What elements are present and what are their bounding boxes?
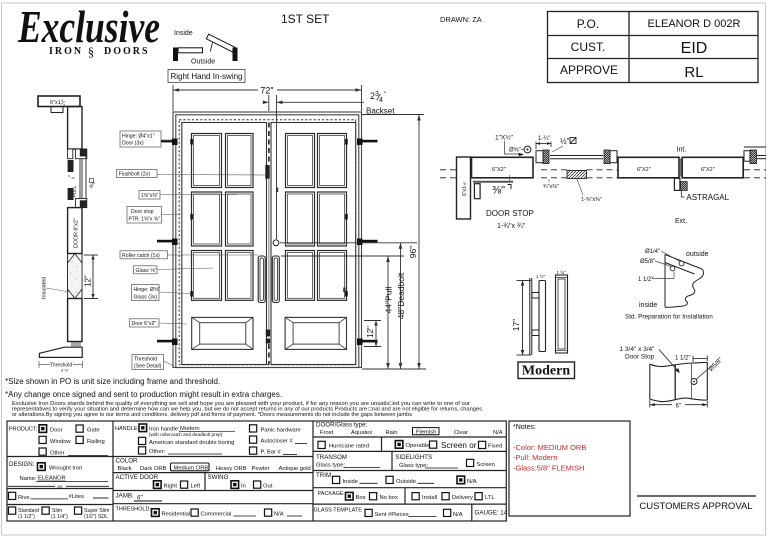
svg-text:1 ½": 1 ½" <box>536 273 546 279</box>
svg-text:DESIGN:: DESIGN: <box>9 461 35 468</box>
svg-text:Residential: Residential <box>162 511 191 517</box>
svg-text:Ø5/8": Ø5/8" <box>640 259 655 265</box>
svg-text:(1 1/4"): (1 1/4") <box>51 514 68 520</box>
svg-text:Panic hardware: Panic hardware <box>261 427 301 433</box>
svg-text:Aquatex: Aquatex <box>351 430 372 436</box>
svg-text:DOOR/Glass type:: DOOR/Glass type: <box>316 421 368 428</box>
svg-text:48"Deadbolt: 48"Deadbolt <box>396 272 406 319</box>
svg-text:Door Stop: Door Stop <box>625 354 655 361</box>
svg-text:Door stop: Door stop <box>131 209 154 215</box>
svg-text:Railing: Railing <box>87 439 105 445</box>
svg-text:Inside: Inside <box>174 30 193 37</box>
svg-text:Outside: Outside <box>396 479 416 485</box>
svg-text:-Glass:5/8" FLEMISH: -Glass:5/8" FLEMISH <box>513 464 584 473</box>
svg-text:PACKAGE: PACKAGE <box>318 491 345 497</box>
svg-text:Standard: Standard <box>18 508 39 514</box>
svg-text:Gate: Gate <box>87 428 100 434</box>
svg-text:Left: Left <box>191 484 201 490</box>
svg-text:Door: Door <box>50 428 63 434</box>
svg-text:N/A: N/A <box>274 511 284 517</box>
svg-text:SIDELIGHTS: SIDELIGHTS <box>395 454 432 461</box>
svg-text:72": 72" <box>260 86 273 96</box>
svg-text:1"X½": 1"X½" <box>495 134 514 142</box>
svg-text:Ø⅝"-: Ø⅝"- <box>509 148 523 154</box>
svg-text:DOOR STOP: DOOR STOP <box>486 209 534 218</box>
svg-text:-Pull: Modern: -Pull: Modern <box>513 453 558 462</box>
svg-text:Clear: Clear <box>454 430 468 436</box>
svg-text:DOORS: DOORS <box>104 46 150 57</box>
svg-text:ELEANOR: ELEANOR <box>38 476 66 482</box>
svg-text:DOOR 6"x2": DOOR 6"x2" <box>74 218 80 248</box>
svg-text:LTL: LTL <box>485 495 495 501</box>
svg-text:6"X2": 6"X2" <box>701 167 715 173</box>
svg-text:Other: Other <box>50 451 65 457</box>
svg-text:JAMB:: JAMB: <box>116 493 135 500</box>
svg-text:Int.: Int. <box>677 147 687 154</box>
svg-text:Hinge: Ø4"x1": Hinge: Ø4"x1" <box>122 134 155 140</box>
svg-text:Medium ORB: Medium ORB <box>174 465 209 471</box>
svg-text:(See Detail): (See Detail) <box>134 364 162 370</box>
svg-text:TRANSOM: TRANSOM <box>316 454 347 461</box>
svg-text:1 1/2": 1 1/2" <box>638 277 653 283</box>
svg-text:Glass (3x): Glass (3x) <box>134 295 158 301</box>
svg-text:Glass type:: Glass type: <box>316 462 345 468</box>
svg-text:Ext.: Ext. <box>675 218 687 225</box>
svg-text:Glass type:: Glass type: <box>399 463 428 469</box>
svg-text:(1 1/2"): (1 1/2") <box>18 514 35 520</box>
svg-text:GAUGE: 14: GAUGE: 14 <box>475 509 508 516</box>
svg-text:PRODUCT:: PRODUCT: <box>9 427 38 433</box>
svg-text:Name:: Name: <box>20 476 37 482</box>
svg-text:HANDLE:: HANDLE: <box>115 426 139 432</box>
svg-text:N/A: N/A <box>467 479 477 485</box>
svg-text:½": ½" <box>462 181 467 186</box>
svg-text:1ST SET: 1ST SET <box>281 12 330 26</box>
svg-text:Other:: Other: <box>149 449 165 455</box>
svg-text:Pewter: Pewter <box>252 466 270 472</box>
svg-text:12": 12" <box>366 326 375 338</box>
svg-text:Antique gold: Antique gold <box>279 466 311 472</box>
svg-text:Dark ORB: Dark ORB <box>140 466 167 472</box>
svg-text:COLOR: COLOR <box>116 457 139 464</box>
svg-text:12": 12" <box>84 275 93 287</box>
svg-text:(with rollercatch and deadbolt: (with rollercatch and deadbolt prep) <box>149 432 223 437</box>
svg-text:Flushbolt (2x): Flushbolt (2x) <box>119 172 151 178</box>
svg-text:THRESHOLD:: THRESHOLD: <box>116 506 152 512</box>
svg-text:Black: Black <box>118 466 132 472</box>
svg-text:Insulated: Insulated <box>42 277 48 299</box>
svg-text:SWING: SWING <box>208 474 229 481</box>
svg-text:96": 96" <box>408 246 418 258</box>
svg-text:American standard double borin: American standard double boring <box>149 440 234 446</box>
svg-text:Rive: Rive <box>18 495 30 501</box>
svg-text:⅜": ⅜" <box>492 185 505 197</box>
svg-text:P.O.: P.O. <box>577 17 599 31</box>
svg-text:Rain: Rain <box>386 430 398 436</box>
svg-text:RL: RL <box>684 64 703 81</box>
svg-text:6 ¾": 6 ¾" <box>61 369 69 373</box>
svg-text:44"Pull: 44"Pull <box>384 287 394 314</box>
svg-text:Super Slim: Super Slim <box>84 508 109 514</box>
svg-text:PULL: PULL <box>72 185 77 197</box>
svg-text:-Color: MEDIUM ORB: -Color: MEDIUM ORB <box>513 443 586 452</box>
svg-text:6"x1: 6"x1 <box>50 100 61 106</box>
svg-text:6"X2": 6"X2" <box>637 167 651 173</box>
svg-text:Right Hand In-swing: Right Hand In-swing <box>170 72 242 81</box>
svg-text:17": 17" <box>511 319 521 331</box>
svg-text:No box: No box <box>380 495 398 501</box>
svg-text:CUST.: CUST. <box>571 40 606 54</box>
svg-text:Roller catch (1x): Roller catch (1x) <box>122 253 160 259</box>
svg-text:Slim: Slim <box>52 508 62 514</box>
svg-text:Commercial: Commercial <box>201 511 232 517</box>
svg-text:¾"x⅜": ¾"x⅜" <box>543 184 559 190</box>
svg-text:Hurricane rated: Hurricane rated <box>329 444 369 450</box>
svg-text:Screen or: Screen or <box>441 441 477 450</box>
svg-text:GLASS TEMPLATE: GLASS TEMPLATE <box>314 507 363 513</box>
svg-text:(1/2") SDL: (1/2") SDL <box>84 514 108 520</box>
svg-text:": " <box>384 92 386 98</box>
svg-text:Window: Window <box>50 439 71 445</box>
svg-text:1 ⅝": 1 ⅝" <box>557 270 567 275</box>
svg-text:Glass ⅝": Glass ⅝" <box>136 268 157 274</box>
svg-text:Outside: Outside <box>191 59 215 66</box>
svg-text:Frost: Frost <box>320 430 334 436</box>
svg-text:Inside: Inside <box>343 479 358 485</box>
svg-text:4: 4 <box>379 97 383 104</box>
svg-text:1⅜"x⅜": 1⅜"x⅜" <box>141 193 158 199</box>
svg-text:Ø1/4": Ø1/4" <box>645 249 660 255</box>
svg-text:ACTIVE DOOR: ACTIVE DOOR <box>116 474 159 481</box>
svg-text:6": 6" <box>676 403 681 409</box>
svg-text:Door (3x): Door (3x) <box>122 141 144 147</box>
svg-text:*Notes:: *Notes: <box>513 424 536 431</box>
svg-text:1-¾"x ¾": 1-¾"x ¾" <box>497 223 526 230</box>
svg-text:1 1/2": 1 1/2" <box>675 356 690 362</box>
svg-text:inside: inside <box>639 302 657 309</box>
svg-text:1 3/4" x 3/4": 1 3/4" x 3/4" <box>620 346 656 353</box>
svg-text:ASTRAGAL: ASTRAGAL <box>686 193 729 202</box>
svg-text:Autocloser #: Autocloser # <box>261 439 294 445</box>
svg-text:N/A: N/A <box>453 512 463 518</box>
svg-text:Heavy ORB: Heavy ORB <box>216 466 247 472</box>
svg-text:outside: outside <box>686 251 709 258</box>
svg-text:*Any change once signed and se: *Any change once signed and sent to prod… <box>5 390 282 399</box>
svg-text:1-¼": 1-¼" <box>538 136 550 142</box>
svg-text:N/A: N/A <box>493 430 503 436</box>
svg-text:Sent #Pieces: Sent #Pieces <box>375 512 409 518</box>
svg-text:P. Bar #: P. Bar # <box>261 450 282 456</box>
svg-text:Threshold: Threshold <box>134 357 157 363</box>
svg-text:Operable: Operable <box>406 443 430 449</box>
svg-text:DRAWN: ZA: DRAWN: ZA <box>440 15 482 24</box>
svg-text:1-⅜"x⅜": 1-⅜"x⅜" <box>581 197 602 203</box>
svg-text:Right: Right <box>164 484 178 490</box>
svg-text:Fixed: Fixed <box>488 444 502 450</box>
svg-text:PTR: 1⅜"x ⅜": PTR: 1⅜"x ⅜" <box>129 217 161 223</box>
svg-text:§: § <box>88 44 95 59</box>
svg-text:In: In <box>241 484 246 490</box>
svg-text:*Size shown in PO is unit size: *Size shown in PO is unit size including… <box>5 377 220 386</box>
svg-text:Screen: Screen <box>477 462 495 468</box>
svg-text:Delivery: Delivery <box>452 495 473 501</box>
svg-text:Std. Preparation for Installat: Std. Preparation for Installation <box>625 314 713 321</box>
svg-text:Wrought Iron: Wrought Iron <box>49 466 82 472</box>
svg-text:½": ½" <box>560 137 570 146</box>
svg-text:6"X2": 6"X2" <box>492 167 506 173</box>
svg-text:Box: Box <box>356 495 366 501</box>
svg-text:Hinge: Ø⅝": Hinge: Ø⅝" <box>134 287 161 293</box>
svg-text:CUSTOMERS APPROVAL: CUSTOMERS APPROVAL <box>639 501 752 512</box>
svg-text:Out: Out <box>263 484 273 490</box>
svg-text:or alterations.By signing you: or alterations.By signing you agree to o… <box>12 412 412 418</box>
svg-text:6"x1: 6"x1 <box>462 186 468 196</box>
svg-text:or: or <box>58 484 63 490</box>
svg-text:Modern: Modern <box>522 364 570 379</box>
svg-text:EID: EID <box>681 40 708 57</box>
svg-text:IRON: IRON <box>49 46 83 57</box>
svg-text:TRIM: TRIM <box>316 472 331 479</box>
svg-text:ELEANOR D 002R: ELEANOR D 002R <box>648 18 741 30</box>
svg-text:Door 6"x2": Door 6"x2" <box>132 321 157 327</box>
svg-text:Install: Install <box>422 495 437 501</box>
svg-text:#Lites: #Lites <box>69 494 85 500</box>
svg-text:APPROVE: APPROVE <box>560 63 618 77</box>
